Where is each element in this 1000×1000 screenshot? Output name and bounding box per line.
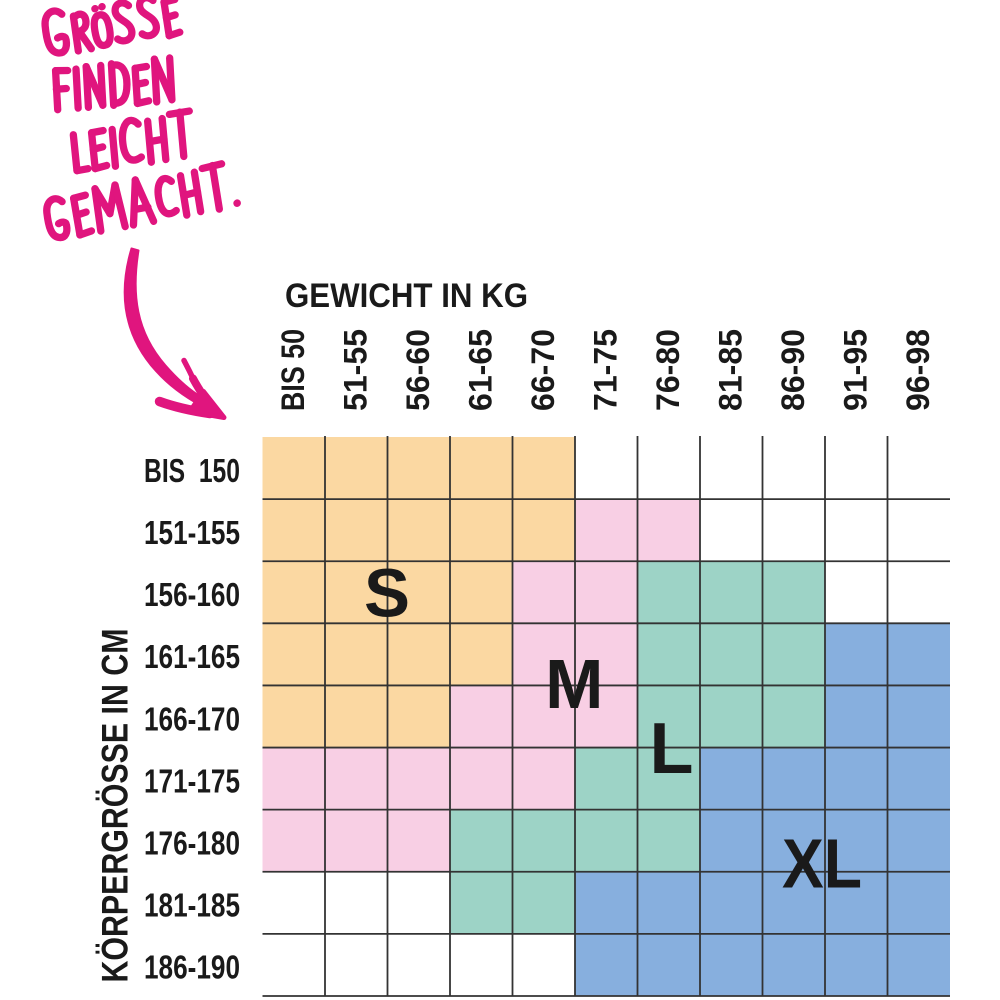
svg-text:BIS 50: BIS 50	[275, 329, 311, 411]
svg-text:L: L	[650, 709, 694, 789]
svg-text:171-175: 171-175	[144, 763, 240, 800]
svg-text:81-85: 81-85	[713, 329, 749, 411]
svg-text:151-155: 151-155	[144, 515, 240, 552]
svg-text:161-165: 161-165	[144, 639, 240, 676]
svg-text:86-90: 86-90	[775, 329, 811, 411]
svg-text:76-80: 76-80	[650, 329, 686, 411]
svg-text:166-170: 166-170	[144, 701, 240, 738]
svg-text:61-65: 61-65	[462, 329, 498, 411]
svg-text:XL: XL	[782, 824, 862, 902]
svg-text:176-180: 176-180	[144, 826, 240, 863]
svg-text:GEWICHT IN KG: GEWICHT IN KG	[285, 277, 528, 315]
svg-text:186-190: 186-190	[144, 950, 240, 987]
svg-text:181-185: 181-185	[144, 888, 240, 925]
svg-text:BIS 150: BIS 150	[144, 453, 240, 490]
svg-text:71-75: 71-75	[588, 329, 624, 411]
svg-text:KÖRPERGRÖSSE IN CM: KÖRPERGRÖSSE IN CM	[94, 629, 136, 983]
svg-text:91-95: 91-95	[838, 329, 874, 411]
svg-text:M: M	[545, 645, 603, 723]
svg-text:96-98: 96-98	[900, 329, 936, 411]
svg-text:66-70: 66-70	[525, 329, 561, 411]
svg-text:S: S	[364, 555, 410, 632]
svg-text:56-60: 56-60	[400, 329, 436, 411]
svg-text:156-160: 156-160	[144, 577, 240, 614]
svg-text:51-55: 51-55	[337, 329, 373, 411]
